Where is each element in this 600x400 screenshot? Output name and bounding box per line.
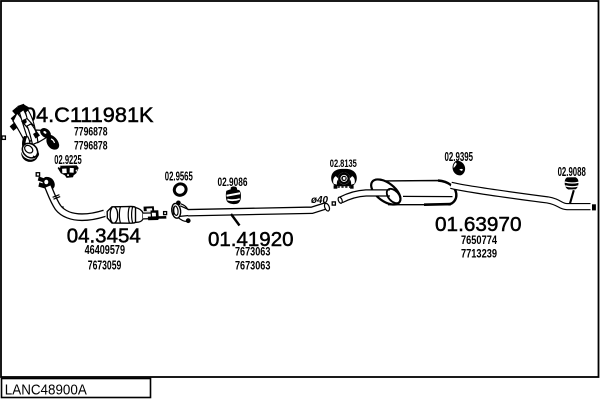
- svg-text:7796878: 7796878: [74, 141, 108, 153]
- svg-text:7673063: 7673063: [235, 247, 270, 259]
- svg-text:02.8135: 02.8135: [330, 158, 357, 170]
- svg-text:02.9088: 02.9088: [558, 164, 586, 179]
- svg-text:01.63970: 01.63970: [435, 213, 522, 236]
- svg-text:04.C111981K: 04.C111981K: [24, 103, 154, 127]
- svg-text:7673059: 7673059: [88, 258, 122, 272]
- svg-text:02.9225: 02.9225: [54, 152, 81, 167]
- svg-text:02.9565: 02.9565: [165, 169, 193, 183]
- svg-text:7650774: 7650774: [461, 235, 497, 247]
- svg-text:7713239: 7713239: [461, 249, 497, 261]
- svg-text:7796878: 7796878: [74, 126, 108, 138]
- svg-text:46409579: 46409579: [85, 243, 125, 257]
- svg-text:LANC48900A: LANC48900A: [5, 382, 88, 399]
- svg-text:7673063: 7673063: [235, 260, 270, 272]
